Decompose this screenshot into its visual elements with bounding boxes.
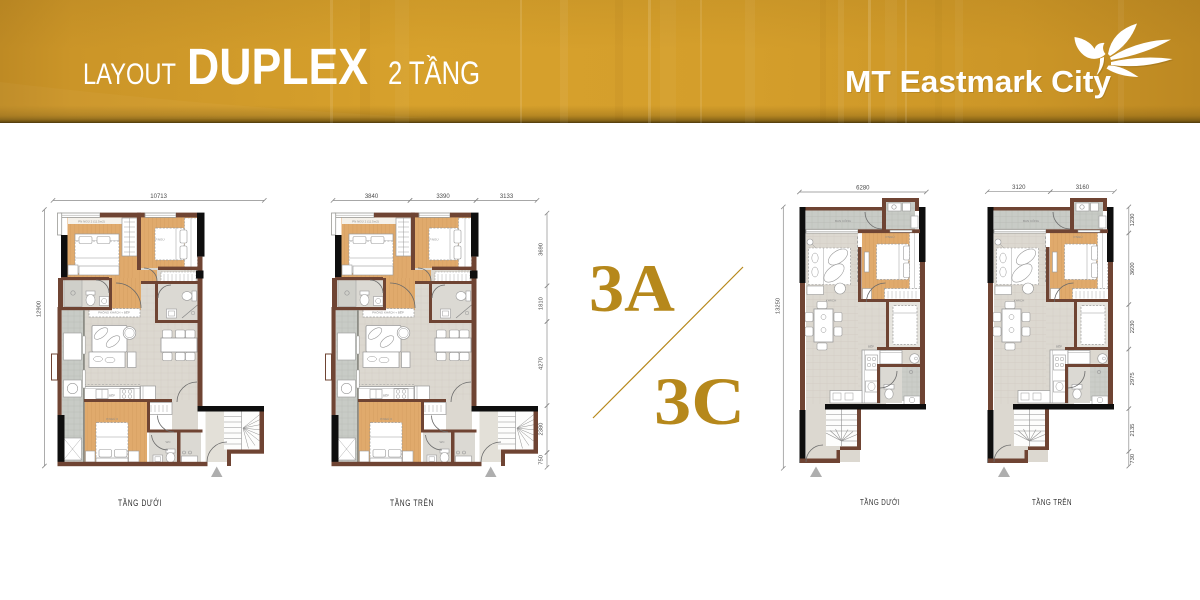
svg-text:2380: 2380 <box>539 423 545 436</box>
svg-text:MT Eastmark City: MT Eastmark City <box>845 64 1112 99</box>
svg-text:P.NGỦ: P.NGỦ <box>885 234 894 239</box>
svg-text:P.NGỦ: P.NGỦ <box>1073 234 1082 239</box>
svg-text:3120: 3120 <box>1012 185 1026 191</box>
svg-text:2135: 2135 <box>1130 424 1136 437</box>
svg-text:2230: 2230 <box>1130 320 1136 333</box>
svg-text:3C: 3C <box>654 363 745 439</box>
svg-text:P.NGỦ 3: P.NGỦ 3 <box>380 416 392 421</box>
svg-text:TẦNG TRÊN: TẦNG TRÊN <box>1032 497 1072 507</box>
svg-text:730: 730 <box>1130 454 1136 464</box>
svg-text:P.NGỦ: P.NGỦ <box>429 237 438 242</box>
svg-text:DUPLEX: DUPLEX <box>187 38 368 95</box>
svg-text:BAN CÔNG: BAN CÔNG <box>835 218 852 223</box>
svg-text:PHÒNG KHÁCH + BẾP: PHÒNG KHÁCH + BẾP <box>372 310 404 315</box>
svg-text:4270: 4270 <box>539 357 545 370</box>
svg-text:6280: 6280 <box>856 185 870 191</box>
svg-text:P.NGỦ: P.NGỦ <box>155 237 164 242</box>
svg-text:3840: 3840 <box>365 194 379 200</box>
svg-text:WC: WC <box>166 440 172 444</box>
svg-text:2975: 2975 <box>1130 372 1136 385</box>
svg-text:750: 750 <box>539 455 545 465</box>
svg-text:3A: 3A <box>589 250 675 326</box>
svg-text:1230: 1230 <box>1130 213 1136 226</box>
svg-text:1810: 1810 <box>539 297 545 310</box>
svg-text:10713: 10713 <box>150 194 167 200</box>
svg-text:13250: 13250 <box>776 298 782 314</box>
svg-text:3133: 3133 <box>500 194 514 200</box>
svg-text:PN NGỦ 2 (11.5m2): PN NGỦ 2 (11.5m2) <box>78 218 105 223</box>
svg-text:BẾP: BẾP <box>1056 344 1062 349</box>
svg-text:KHÁCH: KHÁCH <box>1014 299 1025 303</box>
svg-text:3690: 3690 <box>539 243 545 256</box>
svg-text:LAYOUT: LAYOUT <box>83 58 176 91</box>
svg-text:BẾP: BẾP <box>383 393 389 398</box>
svg-text:WC: WC <box>440 440 446 444</box>
svg-text:TẦNG DƯỚI: TẦNG DƯỚI <box>860 497 900 507</box>
svg-text:BẾP: BẾP <box>868 344 874 349</box>
svg-text:KHÁCH: KHÁCH <box>826 299 837 303</box>
svg-text:3390: 3390 <box>436 194 450 200</box>
svg-text:P.NGỦ 3: P.NGỦ 3 <box>106 416 118 421</box>
svg-text:PHÒNG KHÁCH + BẾP: PHÒNG KHÁCH + BẾP <box>98 310 130 315</box>
svg-text:BẾP: BẾP <box>109 393 115 398</box>
svg-text:PN NGỦ 2 (11.5m2): PN NGỦ 2 (11.5m2) <box>352 218 379 223</box>
svg-text:TẦNG TRÊN: TẦNG TRÊN <box>390 498 434 508</box>
svg-text:3600: 3600 <box>1130 262 1136 275</box>
svg-text:2 TẦNG: 2 TẦNG <box>388 55 480 91</box>
svg-text:TẦNG DƯỚI: TẦNG DƯỚI <box>118 498 162 508</box>
svg-text:12900: 12900 <box>37 301 43 317</box>
svg-text:BAN CÔNG: BAN CÔNG <box>1023 218 1040 223</box>
svg-text:3160: 3160 <box>1076 185 1090 191</box>
